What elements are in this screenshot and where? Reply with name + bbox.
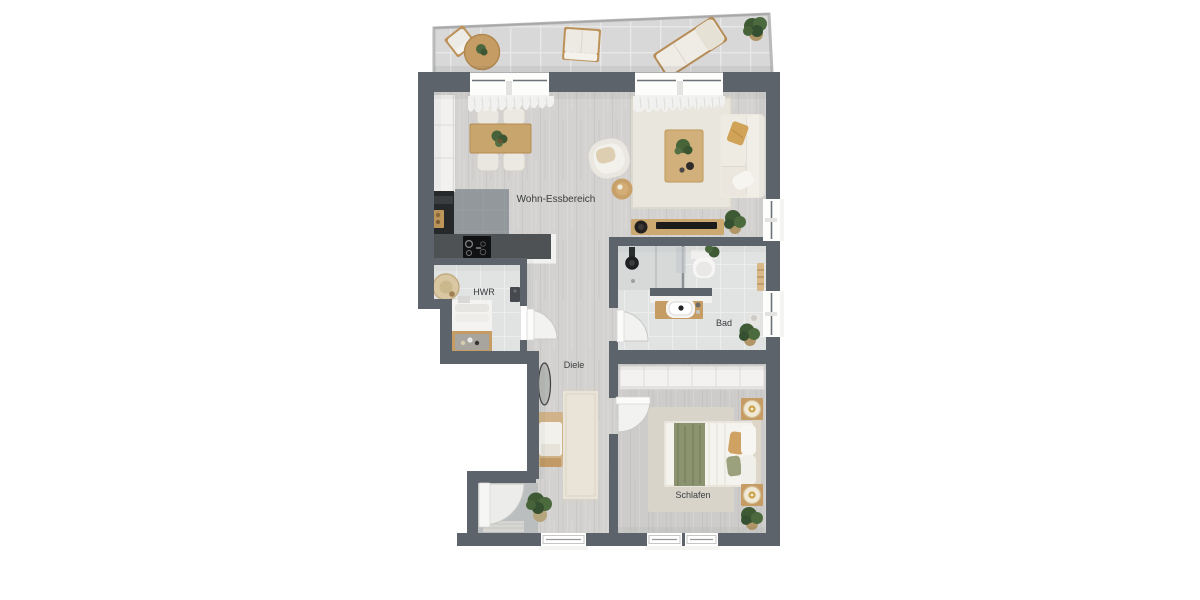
svg-text:Schlafen: Schlafen [675,490,710,500]
svg-text:Wohn-Essbereich: Wohn-Essbereich [517,194,596,205]
svg-text:HWR: HWR [473,287,495,297]
svg-text:Bad: Bad [716,318,732,328]
svg-text:Diele: Diele [564,360,585,370]
